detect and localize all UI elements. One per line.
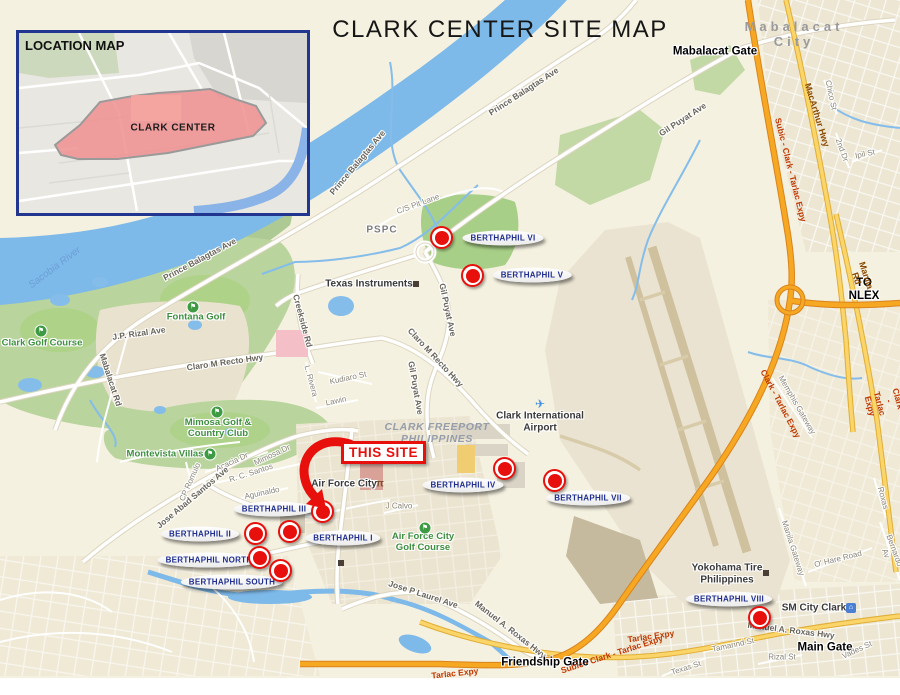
- map-label-manila-rd: Manila Rd: [845, 255, 877, 298]
- map-label-main-gate: Main Gate: [798, 641, 853, 654]
- map-label-acacia-dr: Acacia Dr: [214, 451, 249, 474]
- marker-dot: [753, 611, 767, 625]
- map-label-clark-golf-course: Clark Golf Course: [2, 339, 83, 350]
- site-label-berthaphil-iii: BERTHAPHIL III: [234, 502, 315, 517]
- site-marker-berthaphil-south: [269, 559, 292, 582]
- map-label-j-p-rizal-ave: J.P. Rizal Ave: [112, 325, 166, 342]
- marker-dot: [498, 462, 512, 476]
- map-label-vades-st: Vades St: [841, 639, 874, 661]
- map-label-gil-puyat-ave: Gil Puyat Ave: [405, 360, 424, 415]
- landmark-icon: π: [376, 479, 384, 490]
- location-map-inset: LOCATION MAP CLARK CENTER: [16, 30, 310, 216]
- map-label-jose-p-laurel-ave: Jose P Laurel Ave: [387, 579, 459, 611]
- site-label-berthaphil-viii: BERTHAPHIL VIII: [686, 592, 772, 607]
- map-label-c-s-pit-lane: C/S Pit Lane: [395, 192, 440, 216]
- map-label-l-rivera: L. Rivera: [302, 364, 319, 397]
- golf-icon: ⚑: [204, 448, 217, 461]
- map-label-clark-tarlac-expy: Clark - Tarlac Expy: [758, 368, 802, 440]
- map-label-gil-puyat-ave: Gil Puyat Ave: [658, 101, 709, 139]
- poi-square-icon: [338, 560, 344, 566]
- map-label-manuel-a-roxas-hwy: Manuel A. Roxas Hwy: [472, 599, 547, 661]
- site-marker-berthaphil-viii: [748, 606, 771, 629]
- map-label-subic-clark-tarlac-expy: Subic - Clark - Tarlac Expy: [862, 381, 900, 420]
- marker-dot: [253, 551, 267, 565]
- map-label-lawin: Lawin: [325, 394, 347, 407]
- map-label-texas-st: Texas St: [670, 659, 702, 677]
- site-marker-berthaphil-v: [461, 264, 484, 287]
- map-label-mabalacat-rd: Mabalacat Rd: [97, 352, 123, 407]
- map-label-rizal-st: Rizal St: [768, 652, 796, 661]
- map-label-tamarind-st: Tamarind St: [711, 636, 755, 654]
- map-label-aguinaldo: Aguinaldo: [244, 485, 281, 501]
- map-label-memphis-gateway: Memphis Gateway: [776, 374, 817, 436]
- site-label-berthaphil-south: BERTHAPHIL SOUTH: [181, 575, 283, 590]
- marker-dot: [435, 231, 449, 245]
- map-label-tarlac-expy: Tarlac Expy: [627, 629, 675, 645]
- map-label-roxas: Roxas: [876, 486, 891, 510]
- map-label-claro-m-recto-hwy: Claro M Recto Hwy: [405, 327, 465, 390]
- map-label-yokohama-tire-philippines: Yokohama Tire Philippines: [692, 563, 763, 586]
- map-label-mimosa-golf-country-club: Mimosa Golf & Country Club: [185, 418, 252, 440]
- map-label-kudiaro-st: Kudiaro St: [329, 370, 367, 387]
- poi-square-icon: [763, 570, 769, 576]
- map-label-air-force-city-golf-course: Air Force City Golf Course: [392, 532, 454, 554]
- map-label-to-nlex: TO NLEX: [846, 277, 882, 303]
- marker-dot: [283, 525, 297, 539]
- map-label-prince-balagtas-ave: Prince Balagtas Ave: [487, 66, 560, 118]
- marker-dot: [548, 474, 562, 488]
- map-label-2nd-dr: 2nd Dr: [834, 137, 851, 163]
- site-marker-berthaphil-ii: [244, 522, 267, 545]
- map-label-sacobia-river: Sacobia River: [27, 245, 84, 292]
- map-label-r-c-santos: R. C. Santos: [228, 462, 274, 485]
- map-label-jose-abad-santos-ave: Jose Abad Santos Ave: [155, 465, 231, 531]
- poi-square-icon: [413, 281, 419, 287]
- map-label-manila-gateway: Manila Gateway: [780, 519, 806, 576]
- map-label-friendship-gate: Friendship Gate: [501, 656, 589, 669]
- map-label-j-calvo: J Calvo: [386, 501, 413, 510]
- inset-title: LOCATION MAP: [25, 38, 124, 53]
- map-label-fontana-golf: Fontana Golf: [167, 313, 226, 324]
- map-label-prince-balagtas-ave: Prince Balagtas Ave: [162, 237, 238, 284]
- map-label-tarlac-expy: Tarlac Expy: [431, 667, 479, 682]
- map-label-cp-romulo: CP Romulo: [178, 462, 203, 503]
- site-label-berthaphil-v: BERTHAPHIL V: [493, 268, 572, 283]
- map-label-bernardo-av: Bernardo Av: [876, 533, 900, 570]
- map-label-montevista-villas: Montevista Villas: [127, 450, 204, 461]
- site-marker-berthaphil-north: [248, 546, 271, 569]
- site-marker-berthaphil-iii: [311, 500, 334, 523]
- airport-icon: ✈: [535, 397, 545, 411]
- map-label-macarthur-hwy: MacArthur Hwy: [802, 82, 831, 148]
- site-label-berthaphil-iv: BERTHAPHIL IV: [422, 478, 503, 493]
- map-label-chico-st: Chico St: [823, 79, 838, 110]
- map-label-subic-clark-tarlac-expy: Subic - Clark - Tarlac Expy: [772, 117, 807, 223]
- map-label-creekside-rd: Creekside Rd: [290, 293, 313, 348]
- map-label-mabalacat-city: Mabalacat City: [741, 20, 847, 50]
- marker-dot: [274, 564, 288, 578]
- map-label-claro-m-recto-hwy: Claro M Recto Hwy: [186, 353, 264, 373]
- marker-dot: [249, 527, 263, 541]
- golf-icon: ⚑: [211, 406, 224, 419]
- map-label-pspc: PSPC: [366, 224, 397, 236]
- site-marker-berthaphil-vi: [430, 226, 453, 249]
- site-marker-berthaphil-iv: [493, 457, 516, 480]
- marker-dot: [466, 269, 480, 283]
- this-site-callout: THIS SITE: [341, 441, 426, 464]
- map-label-ipil-st: Ipil St: [854, 147, 875, 160]
- map-label-mimosa-dr: Mimosa Dr: [253, 443, 292, 468]
- marker-dot: [316, 505, 330, 519]
- map-label-o-hare-road: O' Hare Road: [813, 549, 862, 570]
- map-label-air-force-city: Air Force City: [311, 478, 377, 490]
- map-label-prince-balagtas-ave: Prince Balagtas Ave: [328, 129, 388, 197]
- site-marker-berthaphil-vii: [543, 469, 566, 492]
- golf-icon: ⚑: [419, 522, 432, 535]
- map-label-texas-instruments: Texas Instruments: [325, 278, 413, 290]
- page-title: CLARK CENTER SITE MAP: [332, 16, 668, 44]
- inset-area-label: CLARK CENTER: [131, 123, 216, 134]
- map-label-mabalacat-gate: Mabalacat Gate: [673, 45, 757, 58]
- clark-site-map: Mabalacat CityMabalacat GateMacArthur Hw…: [0, 0, 900, 695]
- site-label-berthaphil-i: BERTHAPHIL I: [305, 531, 380, 546]
- golf-icon: ⚑: [187, 301, 200, 314]
- map-label-clark-international-airport: Clark International Airport: [496, 411, 584, 434]
- mall-icon: ⌂: [846, 603, 856, 613]
- site-label-berthaphil-vii: BERTHAPHIL VII: [546, 491, 630, 506]
- site-label-berthaphil-north: BERTHAPHIL NORTH: [158, 553, 261, 568]
- map-label-gil-puyat-ave: Gil Puyat Ave: [437, 282, 458, 337]
- site-label-berthaphil-ii: BERTHAPHIL II: [161, 527, 239, 542]
- site-marker-berthaphil-i: [278, 520, 301, 543]
- map-label-sm-city-clark: SM City Clark: [782, 602, 846, 614]
- site-label-berthaphil-vi: BERTHAPHIL VI: [462, 231, 543, 246]
- golf-icon: ⚑: [35, 325, 48, 338]
- map-label-subic-clark-tarlac-expy: Subic - Clark - Tarlac Expy: [560, 634, 664, 676]
